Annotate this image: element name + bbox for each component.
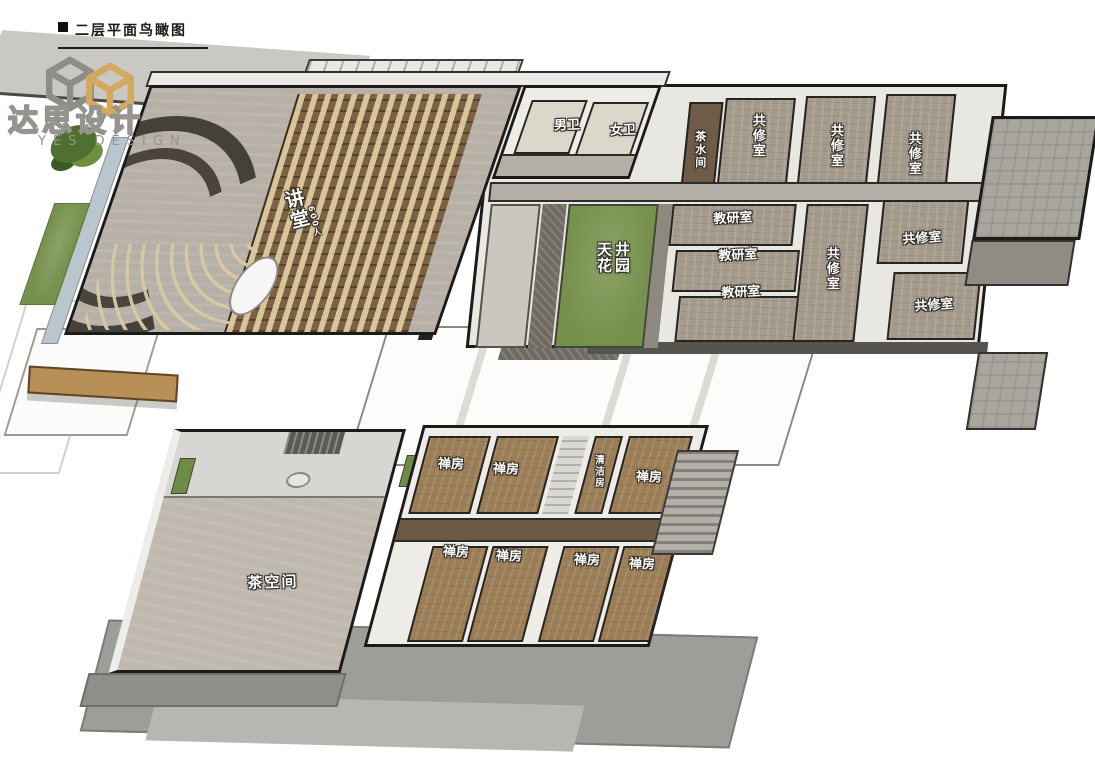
entry-stair	[283, 432, 345, 454]
tea-hall-plinth	[79, 673, 346, 707]
room-label-zen-bottom-1: 禅房	[443, 546, 469, 561]
room-label-cleaning: 清洁房	[593, 455, 603, 490]
room-label-practice-top-2: 共修室	[828, 124, 842, 169]
room-label-research-3: 教研室	[721, 285, 761, 301]
room-label-research-1: 教研室	[713, 211, 753, 227]
stone-terrace-side	[964, 240, 1075, 286]
page-title: 二层平面鸟瞰图	[75, 20, 187, 40]
room-label-zen-top-3: 禅房	[636, 471, 662, 486]
research-room-3	[674, 296, 803, 342]
room-label-zen-top-2: 禅房	[493, 463, 519, 478]
room-label-courtyard-garden: 天井花园	[596, 242, 634, 274]
room-label-practice-top-1: 共修室	[750, 114, 764, 159]
room-label-zen-bottom-4: 禅房	[629, 558, 655, 573]
room-label-female-restroom: 女卫	[610, 124, 636, 139]
room-label-tea-space: 茶空间	[247, 574, 299, 592]
planter	[171, 458, 197, 494]
upper-east-wing	[627, 88, 1015, 358]
logo-brand-english: YES DESIGN	[38, 134, 187, 149]
room-label-zen-bottom-3: 禅房	[574, 554, 600, 569]
entry-terrace	[163, 432, 402, 498]
room-label-zen-top-1: 禅房	[438, 458, 464, 473]
room-label-practice-right-1: 共修室	[902, 231, 942, 247]
room-label-zen-bottom-2: 禅房	[496, 550, 522, 565]
room-label-research-2: 教研室	[718, 248, 758, 264]
room-label-male-restroom: 男卫	[554, 119, 580, 134]
stone-block-east	[966, 352, 1048, 430]
floorplan-rendering: 讲堂 600人 男卫 女卫 茶水间 共修室 共修室 共修室 天井花园 教研室 教…	[0, 0, 1095, 768]
room-label-practice-right-2: 共修室	[914, 298, 954, 314]
restroom-corridor	[496, 154, 636, 176]
room-label-practice-top-3: 共修室	[906, 132, 920, 177]
stone-terrace	[972, 116, 1095, 240]
yes-design-logo: 达思设计 YES DESIGN	[0, 44, 220, 164]
zen-mid-corridor	[395, 518, 681, 542]
round-table	[284, 472, 312, 488]
room-label-practice-center: 共修室	[824, 247, 838, 292]
title-bullet-square	[58, 22, 68, 32]
room-label-tea-water: 茶水间	[694, 131, 706, 170]
tea-space-hall	[109, 429, 406, 673]
